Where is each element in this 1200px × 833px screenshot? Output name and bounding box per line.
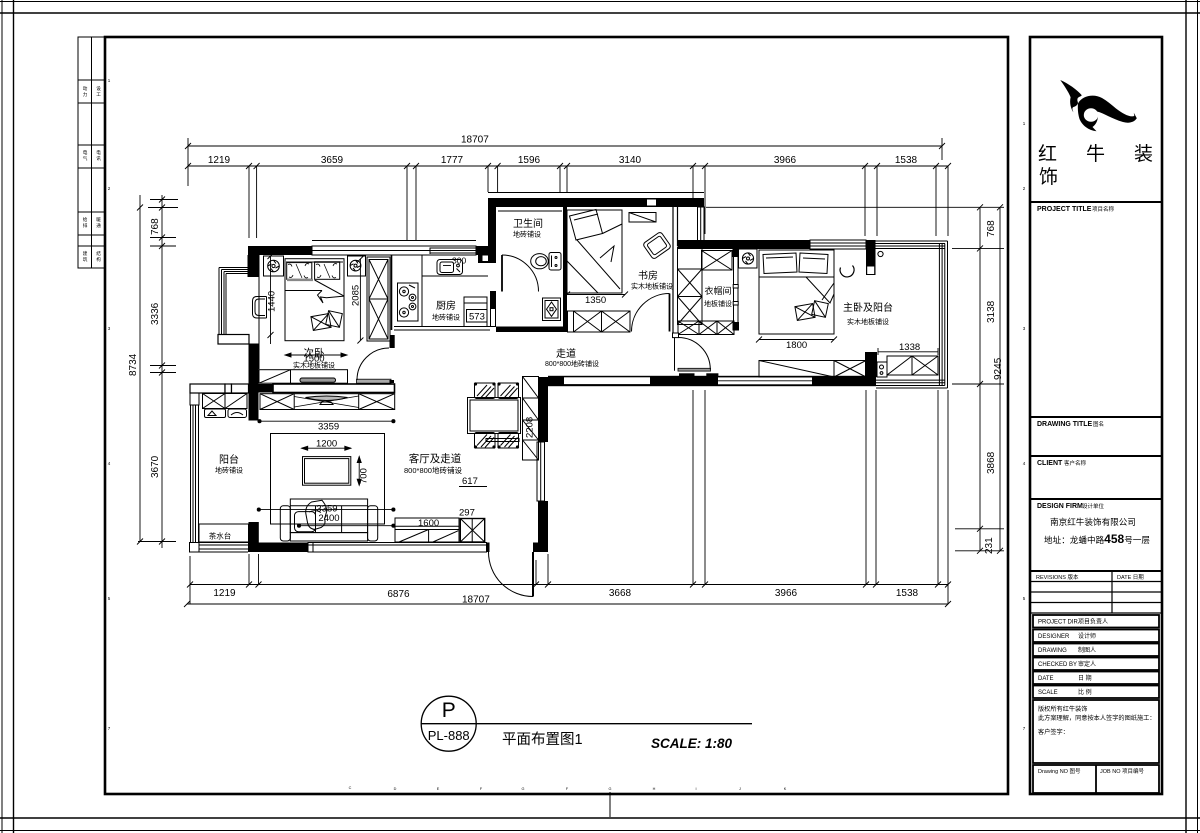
svg-text:地板铺设: 地板铺设 [704, 299, 732, 308]
svg-text:DATE: DATE [1038, 676, 1054, 682]
svg-text:项目名称: 项目名称 [1092, 205, 1115, 213]
svg-text:1800: 1800 [786, 340, 807, 351]
svg-text:日 期: 日 期 [1078, 674, 1092, 682]
svg-text:客厅及走道: 客厅及走道 [409, 452, 462, 465]
svg-text:此方案理解，同意按本人签字的图纸施工：: 此方案理解，同意按本人签字的图纸施工： [1038, 714, 1156, 722]
svg-text:18707: 18707 [462, 595, 490, 606]
svg-text:3966: 3966 [774, 155, 797, 166]
svg-text:审定人: 审定人 [1078, 660, 1096, 668]
svg-text:SCALE: 1:80: SCALE: 1:80 [651, 736, 733, 751]
svg-text:电: 电 [96, 149, 101, 155]
svg-text:3140: 3140 [619, 155, 642, 166]
svg-text:地砖铺设: 地砖铺设 [513, 230, 541, 239]
svg-text:讯: 讯 [96, 155, 101, 162]
svg-text:暖: 暖 [96, 216, 101, 223]
svg-text:制图人: 制图人 [1078, 646, 1096, 654]
svg-text:CLIENT: CLIENT [1037, 460, 1063, 467]
svg-text:排: 排 [83, 222, 88, 229]
svg-text:6876: 6876 [387, 589, 410, 600]
svg-text:9245: 9245 [993, 357, 1004, 380]
svg-text:结: 结 [96, 250, 101, 257]
svg-text:1538: 1538 [896, 588, 919, 599]
svg-text:建: 建 [83, 250, 88, 257]
svg-text:K: K [784, 787, 787, 791]
svg-text:1219: 1219 [208, 155, 231, 166]
svg-text:DRAWING: DRAWING [1038, 648, 1067, 654]
svg-text:C: C [349, 786, 352, 790]
svg-text:300: 300 [452, 256, 466, 266]
svg-text:1219: 1219 [213, 588, 236, 599]
svg-text:主卧及阳台: 主卧及阳台 [843, 301, 893, 314]
svg-text:衣帽间: 衣帽间 [704, 285, 731, 296]
svg-text:3359: 3359 [318, 422, 339, 433]
svg-text:DATE 日期: DATE 日期 [1117, 574, 1144, 581]
svg-text:动: 动 [83, 85, 88, 92]
svg-text:比 例: 比 例 [1078, 688, 1092, 696]
svg-text:DESIGNER: DESIGNER [1038, 634, 1070, 640]
svg-text:电: 电 [83, 149, 88, 155]
svg-text:P: P [442, 699, 456, 722]
svg-text:297: 297 [459, 508, 475, 519]
svg-text:牛: 牛 [1086, 143, 1105, 165]
svg-text:H: H [653, 787, 656, 791]
svg-text:3336: 3336 [150, 302, 161, 325]
svg-text:设计单位: 设计单位 [1082, 502, 1105, 510]
svg-text:2400: 2400 [318, 513, 339, 524]
svg-text:768: 768 [150, 218, 161, 235]
svg-text:1200: 1200 [316, 439, 337, 450]
svg-text:3659: 3659 [321, 155, 344, 166]
svg-text:PL-888: PL-888 [428, 728, 470, 743]
svg-text:地址：龙蟠中路458号一层: 地址：龙蟠中路458号一层 [1044, 532, 1150, 546]
svg-text:力: 力 [83, 91, 88, 98]
svg-text:G: G [522, 787, 525, 791]
svg-text:1777: 1777 [441, 155, 464, 166]
svg-text:JOB NO 项目编号: JOB NO 项目编号 [1100, 767, 1145, 775]
svg-text:800*800地砖铺设: 800*800地砖铺设 [404, 465, 462, 475]
svg-text:通: 通 [96, 222, 101, 229]
svg-text:DESIGN FIRM: DESIGN FIRM [1037, 503, 1083, 510]
svg-text:卫生间: 卫生间 [513, 217, 543, 230]
svg-text:实木地板铺设: 实木地板铺设 [293, 361, 335, 370]
svg-text:地砖铺设: 地砖铺设 [215, 466, 243, 475]
svg-text:573: 573 [469, 312, 485, 323]
svg-text:1596: 1596 [518, 155, 541, 166]
svg-text:SCALE: SCALE [1038, 690, 1058, 696]
svg-text:实木地板铺设: 实木地板铺设 [847, 317, 889, 326]
svg-text:红: 红 [1038, 143, 1057, 165]
svg-text:1538: 1538 [895, 155, 918, 166]
svg-text:2208: 2208 [525, 417, 536, 438]
svg-text:工: 工 [96, 92, 101, 97]
svg-text:3138: 3138 [986, 300, 997, 323]
svg-text:南京红牛装饰有限公司: 南京红牛装饰有限公司 [1050, 516, 1136, 527]
svg-text:气: 气 [83, 155, 88, 161]
svg-text:PROJECT TITLE: PROJECT TITLE [1037, 206, 1092, 213]
svg-text:3670: 3670 [150, 455, 161, 478]
svg-text:700: 700 [359, 468, 370, 484]
svg-text:8734: 8734 [128, 353, 139, 376]
svg-text:走道: 走道 [556, 347, 576, 360]
svg-text:实木地板铺设: 实木地板铺设 [631, 282, 673, 291]
svg-text:饰: 饰 [1039, 166, 1058, 188]
svg-text:3966: 3966 [775, 588, 798, 599]
svg-text:装: 装 [1134, 143, 1153, 165]
svg-text:厨房: 厨房 [436, 299, 456, 312]
svg-text:阳台: 阳台 [219, 453, 239, 466]
svg-text:客户名称: 客户名称 [1064, 459, 1087, 467]
svg-text:768: 768 [986, 220, 997, 237]
svg-text:给: 给 [83, 216, 88, 223]
svg-text:D: D [394, 787, 397, 791]
svg-text:3668: 3668 [609, 588, 632, 599]
svg-text:231: 231 [984, 537, 995, 554]
svg-text:Drawing NO 图号: Drawing NO 图号 [1038, 767, 1081, 775]
svg-text:筑: 筑 [83, 256, 88, 263]
svg-text:1600: 1600 [418, 518, 439, 529]
svg-text:书房: 书房 [638, 269, 658, 282]
svg-text:PROJECT DIR.: PROJECT DIR. [1038, 620, 1080, 626]
svg-text:REVISIONS 版本: REVISIONS 版本 [1036, 573, 1079, 581]
svg-text:客户签字：: 客户签字： [1038, 728, 1069, 736]
svg-text:构: 构 [96, 256, 101, 263]
svg-text:800*800地砖铺设: 800*800地砖铺设 [545, 359, 599, 368]
svg-text:2085: 2085 [351, 285, 362, 306]
svg-text:项目负责人: 项目负责人 [1078, 618, 1108, 626]
svg-text:设计师: 设计师 [1078, 632, 1096, 640]
svg-text:E: E [437, 787, 440, 791]
svg-text:设: 设 [96, 85, 101, 92]
svg-text:J: J [739, 787, 741, 791]
svg-text:18707: 18707 [461, 135, 489, 146]
svg-text:3868: 3868 [986, 451, 997, 474]
svg-text:版权所有红牛装饰: 版权所有红牛装饰 [1038, 705, 1088, 713]
svg-text:茶水台: 茶水台 [209, 531, 232, 541]
svg-text:G: G [609, 787, 612, 791]
svg-text:图名: 图名 [1093, 420, 1104, 428]
svg-text:平面布置图1: 平面布置图1 [502, 731, 583, 748]
svg-text:I: I [695, 787, 696, 791]
svg-text:地砖铺设: 地砖铺设 [432, 313, 460, 322]
svg-text:1440: 1440 [267, 291, 278, 312]
svg-text:DRAWING TITLE: DRAWING TITLE [1037, 421, 1093, 428]
svg-text:617: 617 [462, 476, 478, 487]
svg-text:CHECKED BY: CHECKED BY [1038, 662, 1077, 668]
svg-text:1350: 1350 [585, 295, 606, 306]
